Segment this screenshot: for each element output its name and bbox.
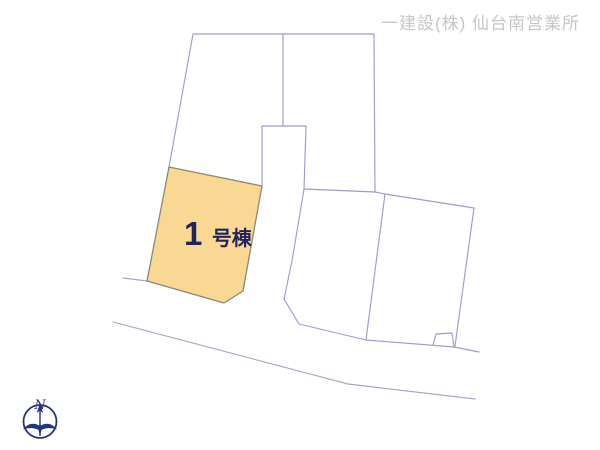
parcel-1-label-number: 1 (184, 215, 202, 252)
site-plan-screen: 一建設(株) 仙台南営業所 (0, 0, 600, 450)
boundary-right-edge (455, 208, 474, 346)
boundary-strip-right (284, 126, 306, 299)
boundary-right-top (375, 192, 474, 208)
boundary-bottom-chain (284, 299, 479, 352)
road-upper-left-segment (123, 278, 147, 281)
boundary-middle-right-divider (366, 194, 385, 340)
site-plan-map: 1 号棟 N (0, 0, 600, 450)
boundary-middle-top (304, 189, 375, 192)
parcel-1-label-suffix: 号棟 (212, 226, 253, 250)
boundary-corner-notch (433, 333, 454, 347)
compass-icon: N (23, 398, 57, 438)
road-lower-edge (113, 322, 475, 399)
parcel-1: 1 号棟 (147, 167, 262, 303)
boundary-outer-top (169, 34, 375, 192)
road-lines (113, 278, 475, 399)
